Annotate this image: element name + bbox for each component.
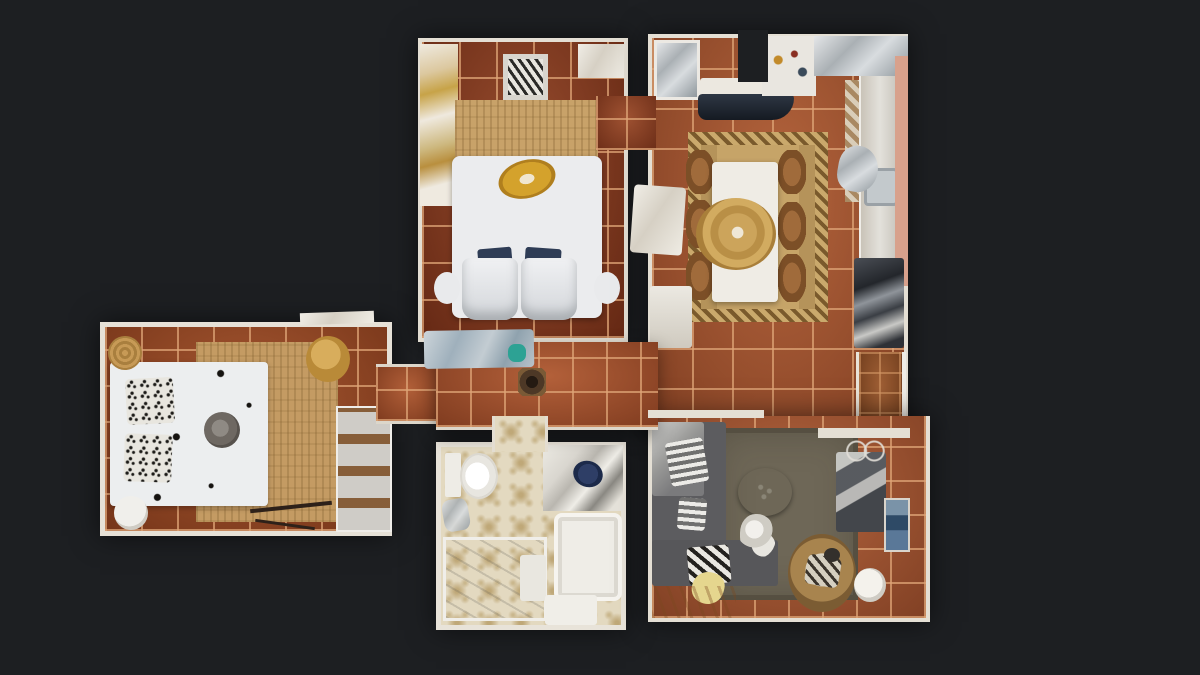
- nightstand: [434, 272, 460, 304]
- blue-niche: [884, 498, 910, 552]
- white-armchair: [521, 258, 577, 320]
- blue-toiletries: [569, 457, 606, 492]
- cabinet: [578, 44, 624, 78]
- printed-pillow: [125, 377, 175, 425]
- room-bathroom[interactable]: [436, 442, 626, 630]
- teal-item: [508, 344, 526, 362]
- range-hood: [814, 36, 908, 76]
- round-basket: [518, 368, 546, 396]
- nightstand: [594, 272, 620, 304]
- dining-chair: [778, 254, 806, 302]
- upper-cabinet-utensils: [762, 36, 816, 96]
- floor-lamp: [854, 568, 886, 602]
- dining-chair: [778, 150, 806, 194]
- media-bench: [836, 452, 886, 532]
- room-living-room[interactable]: [648, 416, 930, 622]
- bath-shelf: [440, 497, 471, 533]
- wall-segment: [648, 410, 764, 418]
- gold-centerpiece: [696, 198, 776, 270]
- room-guest-bedroom[interactable]: [418, 38, 628, 342]
- room-hallway[interactable]: [376, 330, 658, 452]
- wall-notch: [738, 30, 768, 82]
- wall-segment: [818, 428, 910, 438]
- room-master-bedroom[interactable]: [100, 322, 392, 536]
- fridge: [654, 40, 700, 100]
- floor-plan: [0, 0, 1200, 675]
- door-leaf-fragment: [630, 184, 687, 255]
- dark-worktop: [698, 94, 794, 120]
- room-kitchen-dining[interactable]: [648, 34, 908, 430]
- bathtub: [554, 513, 622, 601]
- floor-fragment: [652, 586, 736, 618]
- dark-object: [824, 548, 840, 562]
- bathroom-doorway: [492, 416, 548, 452]
- bath-mat: [545, 595, 597, 625]
- area-rug: [455, 100, 598, 162]
- wire-decor: [844, 438, 886, 464]
- hallway-floor-west: [376, 364, 440, 424]
- toilet-tank: [445, 453, 461, 497]
- striped-cushion: [677, 497, 708, 531]
- toilet: [460, 453, 498, 499]
- doorway-passage: [596, 96, 656, 150]
- striped-cushion: [664, 437, 709, 487]
- dining-chair: [686, 150, 714, 194]
- flower-decor: [740, 514, 776, 558]
- pink-wall: [895, 56, 908, 286]
- zebra-bench: [503, 54, 548, 100]
- sideboard: [854, 258, 904, 348]
- vanity-sink: [543, 445, 623, 511]
- gold-ottoman: [306, 336, 350, 382]
- towel: [520, 555, 546, 601]
- white-stool: [114, 496, 148, 530]
- wicker-basket: [108, 336, 142, 370]
- wall-fragment: [300, 311, 374, 326]
- white-armchair: [462, 258, 518, 320]
- sun-hat: [204, 412, 240, 448]
- wicker-coffee-table: [738, 468, 792, 516]
- dining-chair: [778, 202, 806, 250]
- printed-pillow: [123, 433, 173, 483]
